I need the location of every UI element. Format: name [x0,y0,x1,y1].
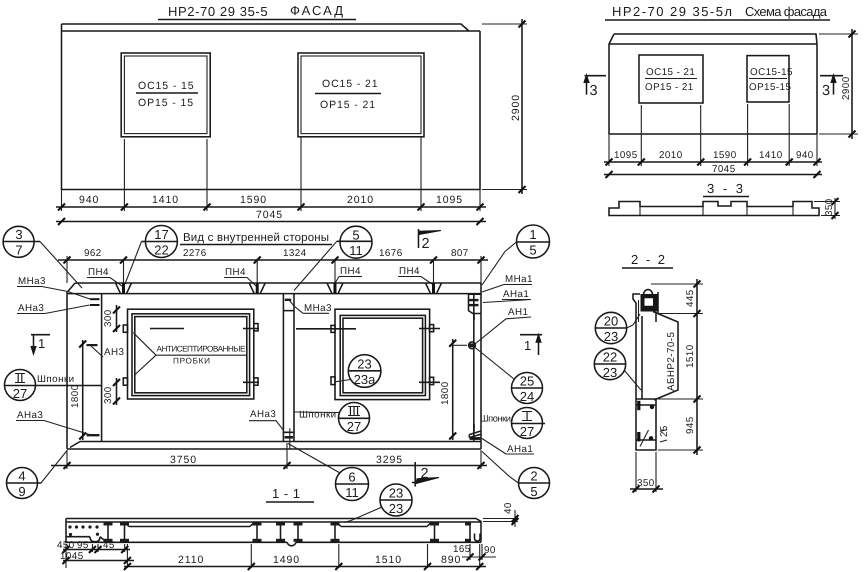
svg-text:Шпонки: Шпонки [299,410,337,421]
svg-text:ПН4: ПН4 [399,266,420,277]
svg-text:1095: 1095 [436,194,463,206]
svg-text:940: 940 [796,150,814,161]
svg-text:23: 23 [389,486,403,501]
svg-text:22: 22 [603,350,617,365]
svg-text:40: 40 [503,502,514,514]
svg-text:17: 17 [154,227,168,242]
svg-text:НР2-70 29 35-5: НР2-70 29 35-5 [168,4,268,19]
svg-text:23: 23 [604,329,618,344]
svg-text:МНа3: МНа3 [304,303,332,314]
svg-text:3 - 3: 3 - 3 [707,181,743,196]
svg-text:165: 165 [453,544,471,555]
svg-text:1590: 1590 [713,150,737,161]
svg-text:ПН4: ПН4 [225,267,246,278]
svg-text:1: 1 [529,227,536,242]
svg-text:АНа3: АНа3 [18,303,44,314]
svg-text:НР2-70 29 35-5л: НР2-70 29 35-5л [612,4,732,19]
svg-text:23: 23 [389,501,403,516]
svg-text:3: 3 [15,227,22,242]
svg-text:445: 445 [685,289,696,307]
svg-text:2110: 2110 [178,554,204,566]
svg-text:90: 90 [484,545,496,556]
svg-text:ОР15 - 21: ОР15 - 21 [320,99,376,111]
svg-text:27: 27 [13,386,27,401]
svg-text:1045: 1045 [60,551,84,562]
svg-text:9: 9 [18,484,25,499]
svg-text:5: 5 [529,243,536,258]
svg-text:350: 350 [824,198,835,216]
svg-text:1590: 1590 [240,194,267,206]
svg-text:МНа3: МНа3 [18,276,46,287]
svg-text:4: 4 [18,469,25,484]
svg-text:23: 23 [357,357,371,372]
svg-text:962: 962 [84,248,102,259]
svg-text:7045: 7045 [256,209,283,221]
svg-text:11: 11 [345,485,359,500]
svg-text:ОС15 - 21: ОС15 - 21 [322,78,379,90]
svg-text:3: 3 [590,83,598,99]
svg-text:5: 5 [530,484,537,499]
svg-text:ОР15 - 21: ОР15 - 21 [645,82,694,93]
svg-text:20: 20 [604,314,618,329]
svg-text:807: 807 [451,248,469,259]
svg-text:2: 2 [421,466,429,482]
svg-text:5: 5 [352,228,359,243]
svg-text:25: 25 [520,374,534,389]
svg-text:2010: 2010 [347,194,374,206]
svg-text:300: 300 [103,386,114,404]
svg-text:350: 350 [637,478,655,489]
svg-text:27: 27 [347,419,361,434]
svg-text:ПН4: ПН4 [88,267,109,278]
svg-text:890: 890 [441,554,461,566]
svg-text:1510: 1510 [685,344,696,368]
svg-text:7: 7 [15,243,22,258]
svg-text:940: 940 [79,194,99,206]
svg-text:2010: 2010 [659,150,683,161]
svg-text:1676: 1676 [379,248,403,259]
svg-text:1800: 1800 [440,381,451,405]
svg-text:ОР15 - 15: ОР15 - 15 [138,97,194,109]
svg-text:АБНР2-70-5: АБНР2-70-5 [666,332,677,391]
svg-text:1095: 1095 [614,150,638,161]
svg-text:27: 27 [520,424,534,439]
svg-text:ПН4: ПН4 [340,266,361,277]
svg-text:2900: 2900 [510,94,522,121]
svg-text:2900: 2900 [841,76,852,100]
svg-text:23: 23 [603,365,617,380]
svg-text:300: 300 [103,309,114,327]
svg-text:25: 25 [659,425,670,437]
svg-text:АН1: АН1 [508,307,528,318]
svg-text:24: 24 [520,389,534,404]
svg-text:1 - 1: 1 - 1 [272,486,300,501]
svg-text:7045: 7045 [712,164,736,175]
svg-text:Шпонки: Шпонки [37,374,75,385]
svg-text:АН3: АН3 [104,347,125,358]
svg-text:450: 450 [57,540,75,551]
svg-text:2 - 2: 2 - 2 [631,252,665,267]
svg-text:945: 945 [685,416,696,434]
svg-text:3: 3 [822,83,830,99]
svg-text:1324: 1324 [283,248,307,259]
svg-text:Вид с внутренней стороны: Вид с внутренней стороны [183,232,329,244]
svg-text:ФАСАД: ФАСАД [290,3,345,18]
svg-text:ПРОБКИ: ПРОБКИ [173,357,211,366]
svg-text:ОР15-15: ОР15-15 [749,82,791,93]
svg-text:2: 2 [422,236,430,252]
svg-text:2: 2 [530,469,537,484]
svg-text:1: 1 [38,336,45,351]
svg-text:3750: 3750 [170,454,197,466]
svg-text:АНТИСЕПТИРОВАННЫЕ: АНТИСЕПТИРОВАННЫЕ [157,345,247,354]
svg-text:11: 11 [349,243,363,258]
svg-text:1: 1 [524,338,531,353]
svg-text:1410: 1410 [759,150,783,161]
svg-text:АНа1: АНа1 [503,289,529,300]
svg-text:АНа3: АНа3 [17,410,43,421]
svg-text:АНа3: АНа3 [250,409,276,420]
svg-text:Схема фасада: Схема фасада [745,4,828,19]
svg-text:23а: 23а [354,372,376,387]
svg-text:МНа1: МНа1 [505,274,533,285]
svg-text:АНа1: АНа1 [507,444,533,455]
svg-text:6: 6 [348,470,355,485]
svg-text:1410: 1410 [152,194,179,206]
svg-text:3295: 3295 [376,454,403,466]
svg-text:95: 95 [77,540,89,551]
svg-text:1800: 1800 [70,384,81,408]
svg-text:2276: 2276 [183,248,207,259]
svg-text:Шпонки: Шпонки [480,414,511,424]
svg-text:45: 45 [103,540,115,551]
svg-text:ОС15 - 21: ОС15 - 21 [646,67,695,78]
svg-text:ОС15-15: ОС15-15 [750,67,793,78]
svg-text:1510: 1510 [375,554,402,566]
svg-text:ОС15 - 15: ОС15 - 15 [138,80,195,92]
svg-text:22: 22 [154,243,168,258]
svg-text:1490: 1490 [273,554,300,566]
